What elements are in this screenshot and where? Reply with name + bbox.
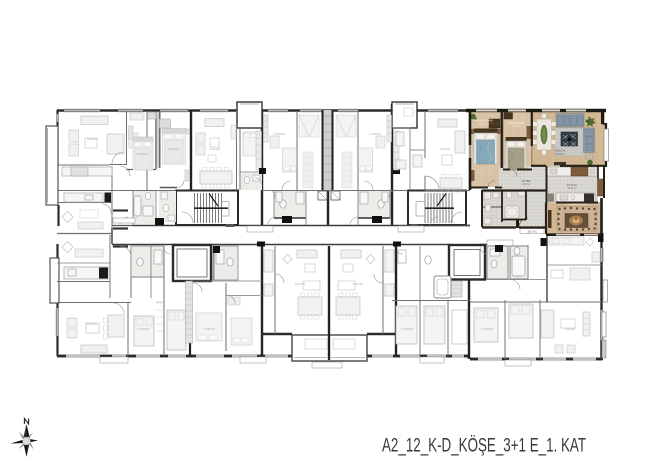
svg-text:Y.ODASI: Y.ODASI [481,327,493,331]
svg-text:SALON: SALON [440,147,450,151]
svg-text:Y.ODASI: Y.ODASI [136,152,148,156]
svg-text:Y.ODASI: Y.ODASI [137,327,149,331]
svg-text:10.10 m²: 10.10 m² [567,187,576,190]
svg-text:SALON: SALON [210,147,220,151]
svg-text:Y.ODASI: Y.ODASI [369,132,381,136]
svg-text:12.10 m²: 12.10 m² [479,123,489,126]
svg-text:YATAK ODASI: YATAK ODASI [475,119,493,123]
svg-text:Y.ODASI: Y.ODASI [401,327,413,331]
svg-text:SALON: SALON [565,327,575,331]
svg-text:10.20 m²: 10.20 m² [511,125,520,128]
svg-text:ANTRE: ANTRE [522,179,531,183]
svg-text:SALON: SALON [555,149,564,153]
svg-text:25.05 m²: 25.05 m² [555,153,565,156]
svg-text:Y.ODASI: Y.ODASI [273,132,285,136]
svg-text:SALON: SALON [87,137,97,141]
svg-text:Y.ODASI: Y.ODASI [203,327,215,331]
svg-text:Y.ODASI: Y.ODASI [167,147,179,151]
svg-text:A2_12_K-D_KÖŞE_3+1 E_1. KAT: A2_12_K-D_KÖŞE_3+1 E_1. KAT [382,436,586,457]
svg-text:MUTFAK: MUTFAK [567,183,578,187]
svg-text:1E 3+1: 1E 3+1 [527,230,537,234]
svg-text:SALON: SALON [353,282,363,286]
svg-text:SALON: SALON [87,322,97,326]
svg-text:4.04 m²: 4.04 m² [522,183,530,186]
svg-text:SALON: SALON [295,282,305,286]
svg-text:YATAK ODASI: YATAK ODASI [508,121,525,125]
